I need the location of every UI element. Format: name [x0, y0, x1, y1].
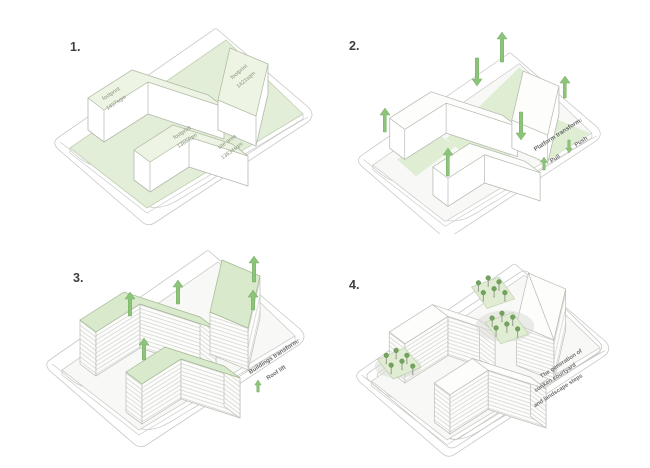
step-2-number: 2.: [349, 39, 359, 53]
step-3-panel: 3. Buildings transform: [0, 234, 325, 468]
pull-arrow-icon: [497, 32, 507, 62]
pull-arrow-icon: [380, 108, 390, 132]
step-1-panel: 1. footprint 1437sqm footprint 1386sqm f…: [0, 0, 325, 234]
pull-arrow-icon: [560, 76, 570, 98]
step-2-panel: 2. Platform transform:: [325, 0, 650, 234]
step-1-number: 1.: [70, 40, 80, 54]
step-3-number: 3.: [73, 271, 83, 285]
step-4-number: 4.: [349, 278, 359, 292]
step-4-panel: 4.: [325, 234, 650, 468]
push-arrow-icon: [472, 58, 482, 86]
arrow-up-icon: [255, 380, 261, 392]
massing-diagram-sheet: 1. footprint 1437sqm footprint 1386sqm f…: [0, 0, 650, 468]
roof-lift-label: Roof lift: [266, 365, 288, 382]
